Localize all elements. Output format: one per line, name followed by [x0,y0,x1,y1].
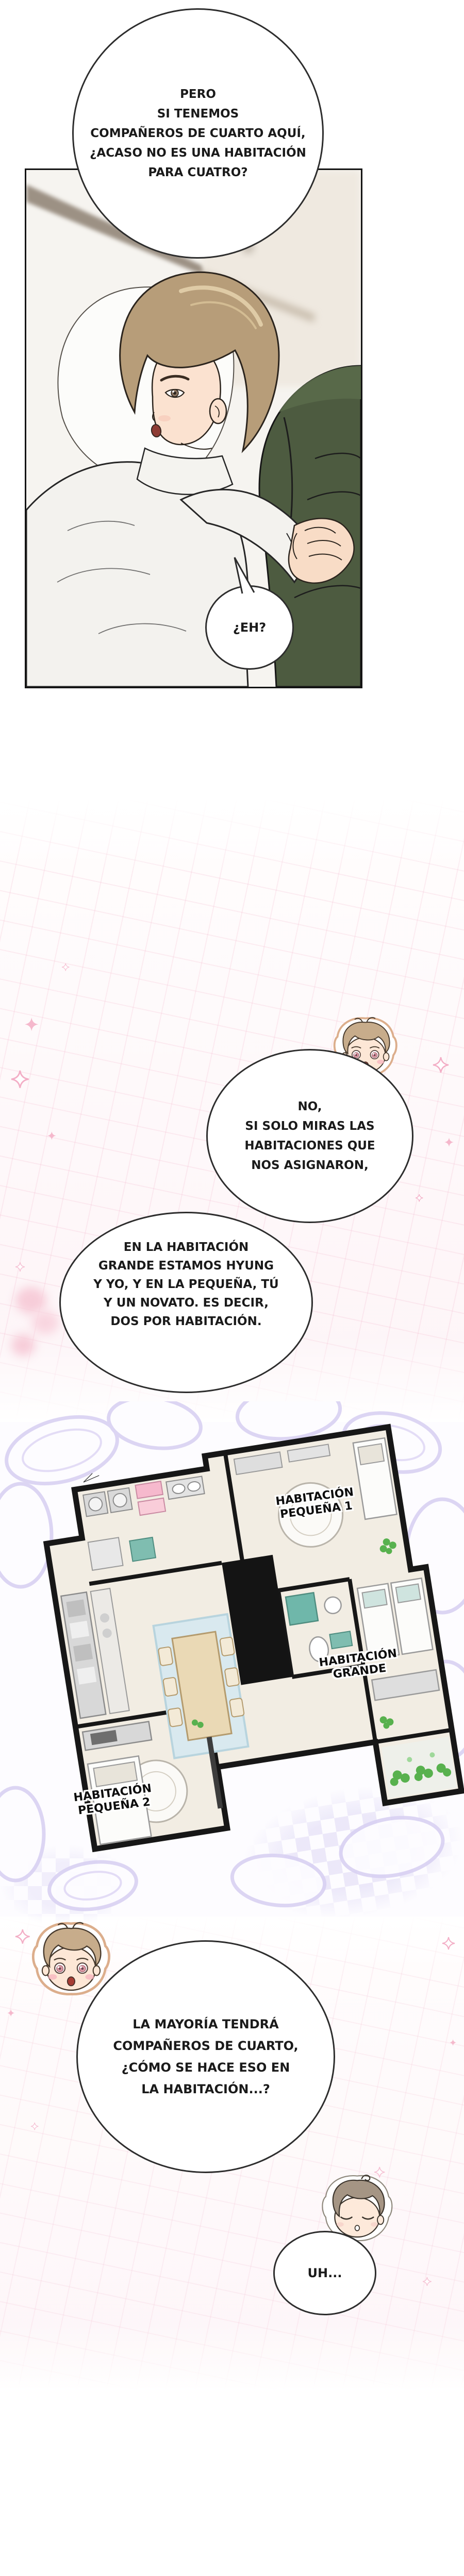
plan-balcony [382,1737,457,1798]
chibi-sticker-2 [29,1921,112,1999]
bubble-3-tail [0,1133,464,1288]
webtoon-page: PEROSI TENEMOSCOMPAÑEROS DE CUARTO AQUÍ,… [0,0,464,2576]
bubble-eh-tail [0,0,464,721]
chibi-head-closed [322,2175,392,2241]
speech-bubble-6-text: UH... [308,2265,342,2281]
speech-bubble-5: LA MAYORÍA TENDRÁCOMPAÑEROS DE CUARTO,¿C… [76,1940,335,2173]
speech-bubble-5-text: LA MAYORÍA TENDRÁCOMPAÑEROS DE CUARTO,¿C… [113,2013,298,2100]
speech-bubble-6: UH... [273,2231,376,2315]
chibi3-mouth [355,2225,360,2230]
chibi-head-open-2 [33,1923,109,1994]
